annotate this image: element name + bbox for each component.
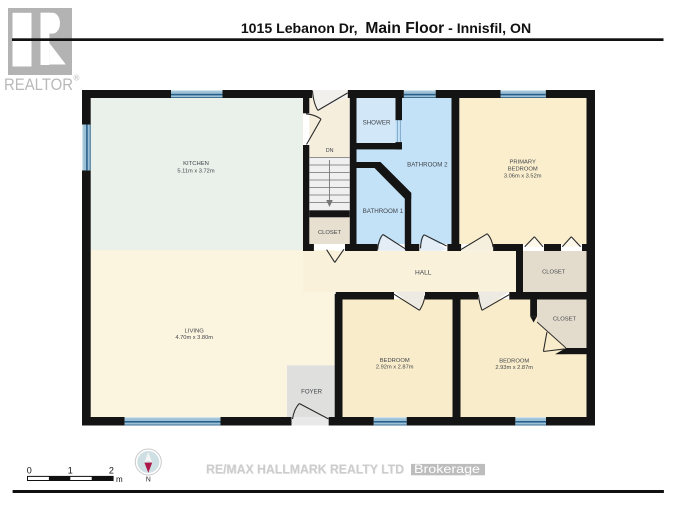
svg-text:BATHROOM 1: BATHROOM 1 [363,208,404,215]
svg-text:2: 2 [109,466,114,476]
svg-text:BEDROOM: BEDROOM [499,358,529,364]
svg-text:PRIMARY: PRIMARY [510,160,536,166]
svg-text:2.92m x 2.87m: 2.92m x 2.87m [376,365,414,371]
svg-text:0: 0 [27,466,32,476]
svg-text:CLOSET: CLOSET [542,270,566,276]
svg-text:CLOSET: CLOSET [553,316,577,322]
svg-text:3.06m x 3.52m: 3.06m x 3.52m [504,173,542,179]
svg-text:m: m [116,475,123,484]
svg-text:REALTOR: REALTOR [4,75,73,94]
svg-text:CLOSET: CLOSET [318,230,342,236]
svg-text:Brokerage: Brokerage [414,462,480,476]
svg-text:N: N [146,477,151,484]
svg-text:FOYER: FOYER [301,388,323,395]
svg-text:2.93m x 2.87m: 2.93m x 2.87m [495,365,533,371]
svg-text:HALL: HALL [415,269,432,276]
svg-text:1: 1 [68,466,73,476]
svg-text:BEDROOM: BEDROOM [508,167,538,173]
svg-text:®: ® [74,74,80,83]
svg-text:DN: DN [326,148,334,154]
svg-text:BATHROOM 2: BATHROOM 2 [407,161,448,168]
svg-text:1015 Lebanon Dr, Main Floor -: 1015 Lebanon Dr, Main Floor - Innisfil, … [241,20,531,37]
svg-text:5.11m x 3.72m: 5.11m x 3.72m [177,168,214,174]
svg-text:BEDROOM: BEDROOM [380,358,410,364]
svg-text:RE/MAX HALLMARK REALTY LTD: RE/MAX HALLMARK REALTY LTD [206,462,404,476]
svg-text:SHOWER: SHOWER [363,119,391,126]
svg-text:KITCHEN: KITCHEN [183,161,209,167]
svg-text:4.70m x 3.80m: 4.70m x 3.80m [175,335,213,341]
svg-text:LIVING: LIVING [185,329,205,335]
